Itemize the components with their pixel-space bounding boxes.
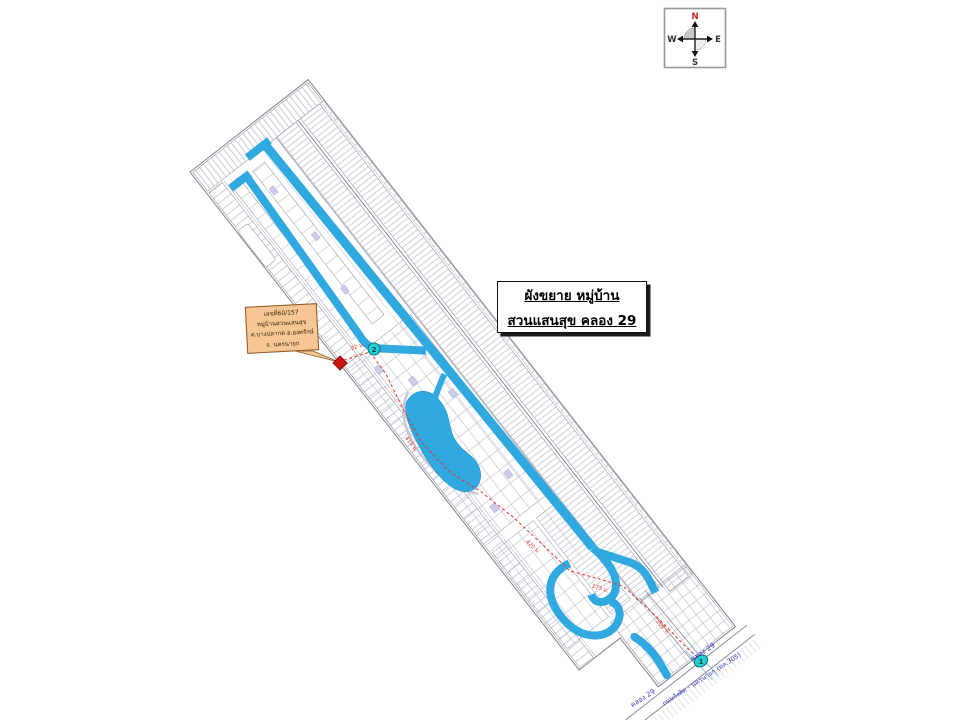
marker-2-number: 2 xyxy=(372,346,377,354)
site-plan-svg: 32 ม. 410 ม. 420 ม. 175 ม. 200 ม. 2 1 คล… xyxy=(0,0,960,720)
plan-title-line2: สวนแสนสุข คลอง 29 xyxy=(508,309,637,331)
site-plan-page: 32 ม. 410 ม. 420 ม. 175 ม. 200 ม. 2 1 คล… xyxy=(0,0,960,720)
plan-title-line1: ผังขยาย หมู่บ้าน xyxy=(524,284,619,306)
compass-east-label: E xyxy=(715,35,721,45)
compass-rose: N S W E xyxy=(665,9,726,69)
plan-title-box: ผังขยาย หมู่บ้าน สวนแสนสุข คลอง 29 xyxy=(497,281,647,333)
compass-north-label: N xyxy=(691,12,698,22)
compass-west-label: W xyxy=(667,35,677,45)
compass-south-label: S xyxy=(692,58,698,68)
address-callout-box: เลขที่60/157 หมู่บ้านสวนแสนสุข ต.บางปลาก… xyxy=(245,303,319,354)
village-strip xyxy=(186,73,764,720)
